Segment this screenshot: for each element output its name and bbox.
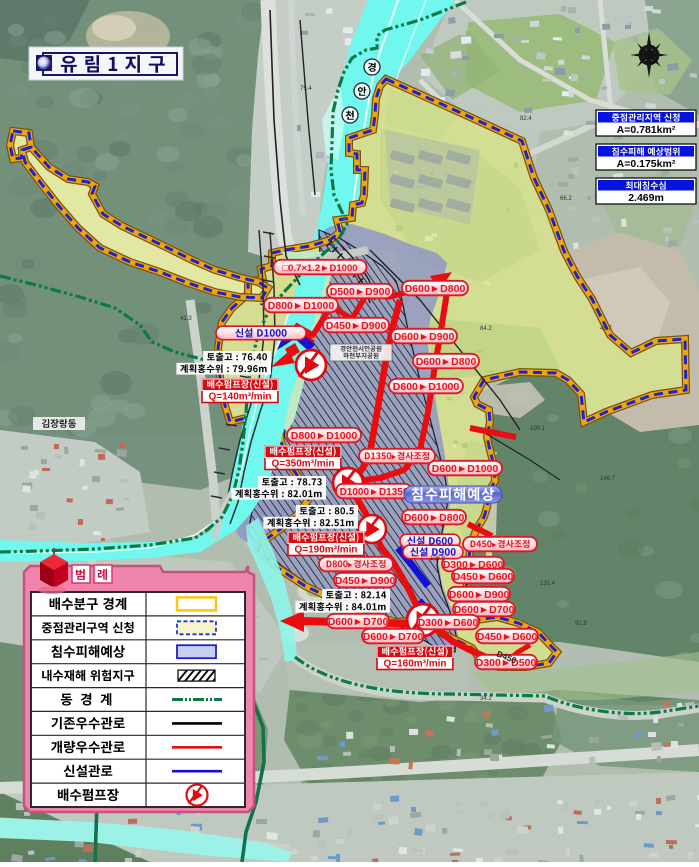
svg-text:75.4: 75.4 [300,86,312,92]
svg-text:D600►D1000: D600►D1000 [393,381,460,393]
svg-text:Q=190m³/min: Q=190m³/min [294,544,357,555]
svg-text:D800►D1000: D800►D1000 [291,430,358,442]
svg-text:D600►D700: D600►D700 [328,616,389,628]
svg-text:D600►D1000: D600►D1000 [432,463,499,475]
svg-text:41.3: 41.3 [180,316,192,322]
svg-text:D600►D900: D600►D900 [394,331,455,343]
svg-text:D450►D900: D450►D900 [335,575,396,587]
svg-text:A=0.781km²: A=0.781km² [617,124,676,136]
svg-text:D300►D600: D300►D600 [418,617,479,629]
svg-text:□0.7×1.2►D1000: □0.7×1.2►D1000 [282,263,357,274]
svg-text:D800►D1000: D800►D1000 [268,300,335,312]
svg-text:D600►D900: D600►D900 [449,589,510,601]
svg-text:Q=160m³/min: Q=160m³/min [383,658,446,669]
svg-text:D600►D800: D600►D800 [416,356,477,368]
svg-text:Q=350m³/min: Q=350m³/min [271,458,334,469]
svg-text:D600►D800: D600►D800 [404,512,465,524]
svg-text:66.2: 66.2 [560,196,572,202]
svg-text:2.469m: 2.469m [628,192,664,204]
svg-text:131.4: 131.4 [540,581,556,587]
svg-text:D500►D900: D500►D900 [330,286,391,298]
svg-text:D450►D600: D450►D600 [477,631,538,643]
svg-text:146.7: 146.7 [600,476,616,482]
svg-text:D600►D800: D600►D800 [405,283,466,295]
svg-text:D1000►D1350: D1000►D1350 [340,487,409,498]
svg-text:D450►D600: D450►D600 [453,571,514,583]
svg-text:106.9: 106.9 [430,556,446,562]
svg-text:84.2: 84.2 [480,326,492,332]
svg-text:92.8: 92.8 [575,621,587,627]
svg-text:D450►D900: D450►D900 [326,320,387,332]
svg-text:A=0.175km²: A=0.175km² [617,158,676,170]
svg-text:Q=140m³/min: Q=140m³/min [208,391,271,402]
svg-text:34.2: 34.2 [480,696,492,702]
svg-text:45.7: 45.7 [600,326,612,332]
svg-text:D600►D700: D600►D700 [363,631,424,643]
svg-text:82.4: 82.4 [520,116,532,122]
svg-text:100.1: 100.1 [530,426,546,432]
